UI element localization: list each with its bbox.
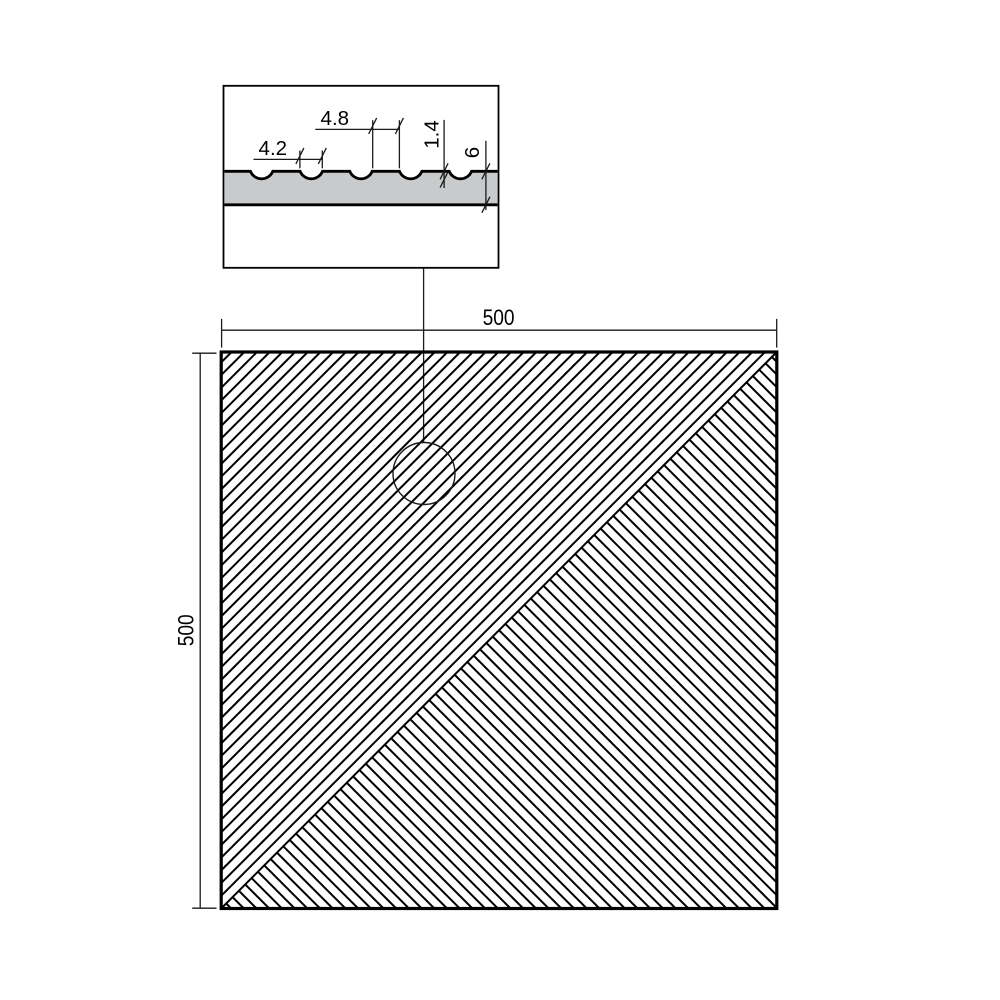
svg-text:4.2: 4.2 xyxy=(259,137,288,160)
svg-text:500: 500 xyxy=(483,305,515,330)
svg-text:500: 500 xyxy=(174,614,199,646)
svg-text:1.4: 1.4 xyxy=(421,120,444,149)
svg-text:6: 6 xyxy=(461,147,484,158)
svg-text:4.8: 4.8 xyxy=(321,107,350,130)
